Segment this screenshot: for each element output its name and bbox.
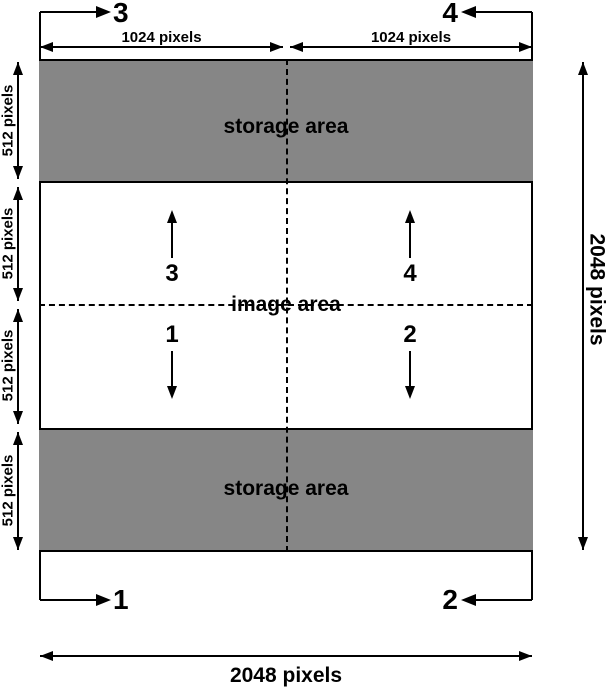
dim-left-512-1-label: 512 pixels [1,76,16,166]
transfer-arrow-down-1-label: 1 [160,323,184,347]
dim-top-right-line [290,46,532,48]
dim-left-512-2-label: 512 pixels [1,199,16,289]
dim-top-right-label: 1024 pixels [290,30,532,45]
dim-line [17,432,19,550]
arrowhead-right-icon [96,594,111,606]
transfer-arrow-up-3-label: 3 [160,262,184,286]
dim-bottom-2048-label: 2048 pixels [40,665,532,686]
dim-left-512-3-label: 512 pixels [1,321,16,411]
arrowhead-down-icon [13,411,23,424]
dim-right-2048-label: 2048 pixels [587,230,608,350]
dim-left-512-4-label: 512 pixels [1,446,16,536]
arrowhead-left-icon [40,651,53,661]
arrowhead-left-icon [461,594,476,606]
transfer-arrow-down-2-label: 2 [398,323,422,347]
arrowhead-down-icon [167,386,177,399]
arrowhead-up-icon [13,432,23,445]
arrowhead-down-icon [13,166,23,179]
arrowhead-left-icon [461,6,476,18]
readout-arrow-1-label: 1 [113,586,129,614]
arrowhead-right-icon [519,651,532,661]
arrowhead-down-icon [13,288,23,301]
storage-area-top-label: storage area [39,116,533,137]
arrowhead-down-icon [13,537,23,550]
readout-arrow-3-shaft [40,11,96,13]
dim-line [17,309,19,424]
dim-line [17,62,19,179]
dim-line [582,62,584,550]
readout-arrow-2-label: 2 [433,586,458,614]
readout-arrow-4-shaft [476,11,532,13]
dim-line [17,187,19,301]
arrowhead-up-icon [578,62,588,75]
storage-area-bottom-label: storage area [39,478,533,499]
readout-arrow-4-label: 4 [433,0,458,27]
arrowhead-down-icon [405,386,415,399]
arrowhead-down-icon [578,537,588,550]
dim-top-left-line [40,46,283,48]
arrowhead-right-icon [96,6,111,18]
readout-arrow-3-label: 3 [113,0,129,27]
dim-line [40,655,532,657]
readout-arrow-2-shaft [476,599,532,601]
transfer-arrow-shaft [171,222,173,258]
transfer-arrow-shaft [171,351,173,387]
image-area-label: image area [39,294,533,315]
transfer-arrow-up-4-label: 4 [398,262,422,286]
transfer-arrow-shaft [409,222,411,258]
transfer-arrow-shaft [409,351,411,387]
ccd-frame-transfer-diagram: storage area image area storage area 3 4… [0,0,612,689]
readout-arrow-1-shaft [40,599,96,601]
dim-top-left-label: 1024 pixels [40,30,283,45]
arrowhead-up-icon [13,62,23,75]
